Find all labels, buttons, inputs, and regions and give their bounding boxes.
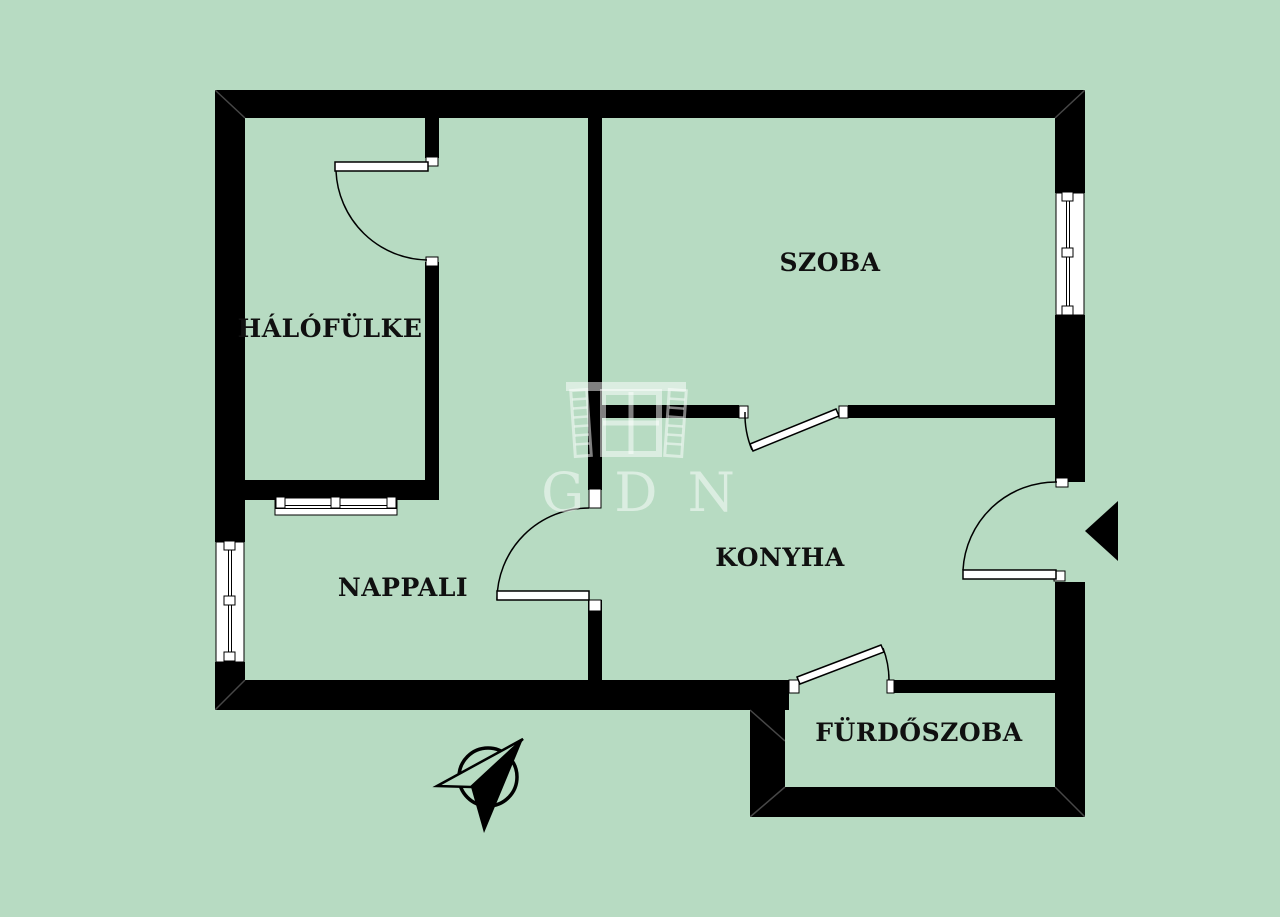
wall-center-lower [588, 600, 602, 680]
room-label-nappali: NAPPALI [338, 573, 468, 602]
room-label-szoba: SZOBA [779, 248, 880, 277]
wall-top [215, 90, 1085, 118]
logo-shutter-slat [575, 434, 589, 435]
window-mark [1062, 306, 1073, 315]
window-mark [276, 497, 285, 508]
watermark-text: GDN [541, 461, 765, 524]
jamb [789, 680, 799, 693]
floorplan-drawing: GDN HÁLÓFÜLKE SZOBA NAPPALI KONYHA FÜRDŐ… [0, 0, 1280, 917]
window-alcove [275, 497, 397, 515]
jamb [589, 600, 601, 611]
wall-alcove-right-upper [425, 118, 439, 158]
logo-shutter-slat [669, 408, 684, 409]
door-leaf-entrance [963, 570, 1056, 579]
logo-shutter-slat [572, 399, 586, 400]
wall-szoba-konyha-right [848, 405, 1055, 418]
wall-bath-top [893, 680, 1055, 693]
window-mark [1062, 192, 1073, 201]
jamb [839, 406, 848, 418]
wall-bottom [215, 680, 789, 710]
jamb [739, 406, 748, 418]
wall-bath-bottom [750, 787, 1085, 817]
logo-shutter-slat [667, 434, 682, 435]
logo-shutter-slat [670, 399, 685, 400]
window-left [216, 541, 244, 662]
room-label-konyha: KONYHA [715, 543, 845, 572]
logo-shutter-slat [573, 408, 587, 409]
window-mark [224, 652, 235, 661]
wall-right-mid [1055, 315, 1085, 482]
floorplan-page: GDN HÁLÓFÜLKE SZOBA NAPPALI KONYHA FÜRDŐ… [0, 0, 1280, 917]
jamb [1056, 478, 1068, 487]
window-mark [224, 541, 235, 550]
logo-shutter-slat [667, 443, 682, 444]
logo-shutter-slat [668, 417, 683, 418]
door-leaf-nappali [497, 591, 589, 600]
wall-alcove-right-lower [425, 262, 439, 500]
door-leaf-alcove [335, 162, 428, 171]
room-label-furdoszoba: FÜRDŐSZOBA [815, 718, 1022, 747]
window-mark [1062, 248, 1073, 257]
wall-alcove-bottom [245, 480, 439, 500]
jamb [887, 680, 894, 693]
window-mark [224, 596, 235, 605]
logo-shutter-slat [575, 443, 589, 444]
wall-right-above-window [1055, 118, 1085, 193]
logo-shutter-slat [668, 426, 683, 427]
background [0, 0, 1280, 917]
room-label-halofulke: HÁLÓFÜLKE [238, 314, 423, 343]
logo-shutter-slat [574, 417, 588, 418]
window-right [1056, 192, 1084, 315]
window-mark [331, 497, 340, 508]
logo-shutter-slat [574, 426, 588, 427]
wall-right-lower [1055, 582, 1085, 817]
jamb [426, 257, 438, 266]
window-mark [387, 497, 396, 508]
